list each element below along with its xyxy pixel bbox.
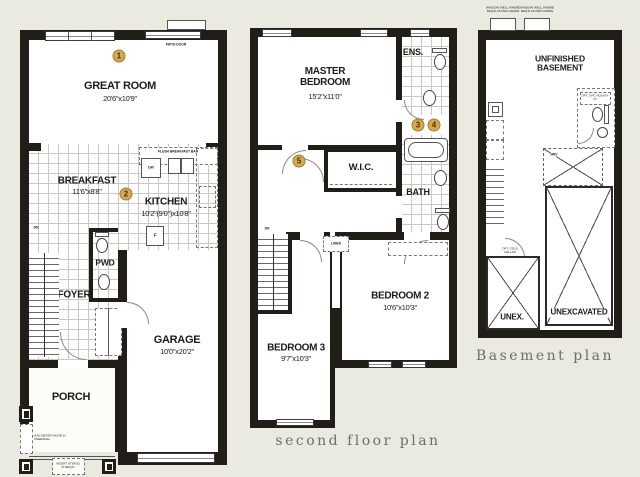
cold-cellar-label: OPT. COLD CELLAR bbox=[498, 248, 523, 255]
master-bedroom-dims: 15'2"x11'0" bbox=[308, 93, 341, 101]
garage-door-opening bbox=[118, 302, 127, 328]
ens-door-opening bbox=[396, 100, 402, 122]
toilet-icon bbox=[434, 54, 446, 70]
garage-dims: 10'0"x20'2" bbox=[160, 348, 194, 356]
window-well bbox=[524, 18, 550, 31]
bath-label: BATH bbox=[406, 188, 430, 198]
master-bedroom-label: MASTER BEDROOM bbox=[292, 67, 358, 89]
wic-wall bbox=[324, 148, 396, 152]
great-room-label: GREAT ROOM bbox=[84, 81, 156, 93]
marker-4: 4 bbox=[428, 119, 441, 132]
wic-label: W.I.C. bbox=[349, 163, 374, 173]
basement-stairs bbox=[486, 164, 504, 226]
kitchen-label: KITCHEN bbox=[145, 198, 187, 209]
second-floor-caption: second floor plan bbox=[275, 433, 440, 449]
garage-label: GARAGE bbox=[154, 335, 200, 347]
kitchen-dims: 10'2"(9'0")x10'8" bbox=[141, 210, 190, 218]
foyer-label: FOYER bbox=[58, 291, 91, 302]
closet-divider bbox=[108, 308, 109, 356]
sink-icon bbox=[434, 170, 447, 186]
marker-3: 3 bbox=[412, 119, 425, 132]
bathtub-icon bbox=[408, 142, 444, 158]
bath-door-opening bbox=[396, 196, 402, 218]
bedroom3-door-opening bbox=[300, 232, 324, 240]
window-well bbox=[490, 18, 516, 31]
linen-label: LINEN bbox=[331, 242, 341, 246]
electrical-panel bbox=[492, 106, 499, 113]
breakfast-label: BREAKFAST bbox=[58, 177, 116, 188]
porch-post bbox=[19, 459, 33, 474]
bedroom3-dims: 9'7"x10'3" bbox=[281, 355, 311, 363]
closet-inset bbox=[332, 252, 340, 308]
window bbox=[262, 29, 292, 37]
window bbox=[402, 361, 426, 368]
breakfast-dims: 11'6"x8'8" bbox=[72, 188, 101, 196]
wic-wall bbox=[324, 148, 328, 192]
stairs-dn-label: DN bbox=[265, 227, 270, 231]
bedroom2-label: BEDROOM 2 bbox=[371, 292, 429, 303]
toilet-icon bbox=[96, 238, 108, 253]
patio-door-slider bbox=[167, 20, 206, 30]
marker-band bbox=[402, 115, 449, 135]
porch-post bbox=[19, 406, 33, 422]
great-room-dims: 20'6"x10'9" bbox=[103, 95, 137, 103]
toilet-icon bbox=[604, 105, 609, 124]
toilet-icon bbox=[437, 214, 449, 230]
bedroom2-door-opening bbox=[404, 232, 430, 240]
ens-label: ENS. bbox=[403, 48, 423, 58]
window-well-label: WINDOW WELL WHERE REQ'D AS PER GRADE bbox=[486, 7, 521, 14]
toilet-icon bbox=[435, 208, 450, 213]
toilet-icon bbox=[95, 232, 109, 237]
gas-meter-niche bbox=[20, 424, 33, 454]
basement-label-line2: BASEMENT bbox=[537, 63, 583, 72]
kitchen-sink bbox=[168, 158, 181, 174]
marker-5: 5 bbox=[293, 155, 306, 168]
window bbox=[410, 29, 430, 37]
stairs-down bbox=[258, 234, 288, 310]
flush-bar-label: FLUSH BREAKFAST BAR bbox=[158, 150, 198, 154]
toilet-icon bbox=[432, 48, 447, 53]
bedroom2-dims: 10'6"x10'3" bbox=[383, 304, 417, 312]
bedroom3-label: BEDROOM 3 bbox=[267, 344, 325, 355]
patio-door bbox=[145, 31, 201, 39]
front-door-opening bbox=[58, 360, 88, 368]
bedroom2-closet bbox=[388, 242, 448, 256]
fridge-label: F bbox=[154, 234, 157, 239]
floorplan-sheet: PATIO DOOR 1 GREAT ROOM 20'6"x10'9" BREA… bbox=[0, 0, 640, 477]
stairs-dn-label: DN bbox=[34, 226, 39, 230]
window bbox=[360, 29, 388, 37]
sink-icon bbox=[423, 90, 436, 106]
porch-label: PORCH bbox=[52, 392, 90, 404]
toilet-icon bbox=[592, 107, 603, 122]
patio-door-label: PATIO DOOR bbox=[166, 43, 186, 47]
furnace bbox=[486, 120, 504, 140]
unexcavated-label: UNEXCAVATED bbox=[549, 309, 610, 318]
wall bbox=[258, 310, 292, 314]
kitchen-sink bbox=[181, 158, 194, 174]
counter-appliance bbox=[199, 186, 216, 208]
window bbox=[45, 31, 115, 41]
unex-label: UNEX. bbox=[498, 314, 525, 323]
wall-nub bbox=[29, 143, 41, 151]
double-hanging-label: DOUBLE HANGING bbox=[346, 189, 376, 193]
sink-icon bbox=[597, 127, 608, 138]
window-mullion bbox=[68, 31, 69, 41]
window-mullion bbox=[91, 31, 92, 41]
gas-meter-label: GAS METER NICHE IN KNEEWALL bbox=[34, 435, 66, 442]
steps-label: INSERT STEP(S) IF REQ'D bbox=[56, 463, 81, 470]
window bbox=[276, 419, 314, 426]
window bbox=[368, 361, 392, 368]
pwd-label: PWD bbox=[95, 258, 114, 267]
porch-post bbox=[102, 459, 116, 474]
basement-caption: Basement plan bbox=[476, 348, 614, 364]
water-heater bbox=[486, 140, 504, 160]
porch-edge bbox=[29, 456, 115, 457]
marker-2: 2 bbox=[120, 188, 133, 201]
sink-icon bbox=[98, 274, 110, 290]
wall bbox=[288, 234, 292, 310]
dishwasher-label: DW bbox=[148, 166, 154, 170]
stairs-up bbox=[29, 253, 59, 357]
marker-1: 1 bbox=[113, 50, 126, 63]
window-well-label: WINDOW WELL WHERE REQ'D AS PER GRADE bbox=[520, 7, 555, 14]
unexcavated-area bbox=[545, 186, 613, 326]
wall bbox=[335, 232, 457, 240]
double-hanging-rod bbox=[330, 184, 392, 185]
rough-in-label: OPT. 3-PC ROUGH-IN bbox=[581, 95, 609, 102]
garage-door bbox=[137, 453, 215, 463]
hrv-label: HRV bbox=[549, 153, 558, 157]
